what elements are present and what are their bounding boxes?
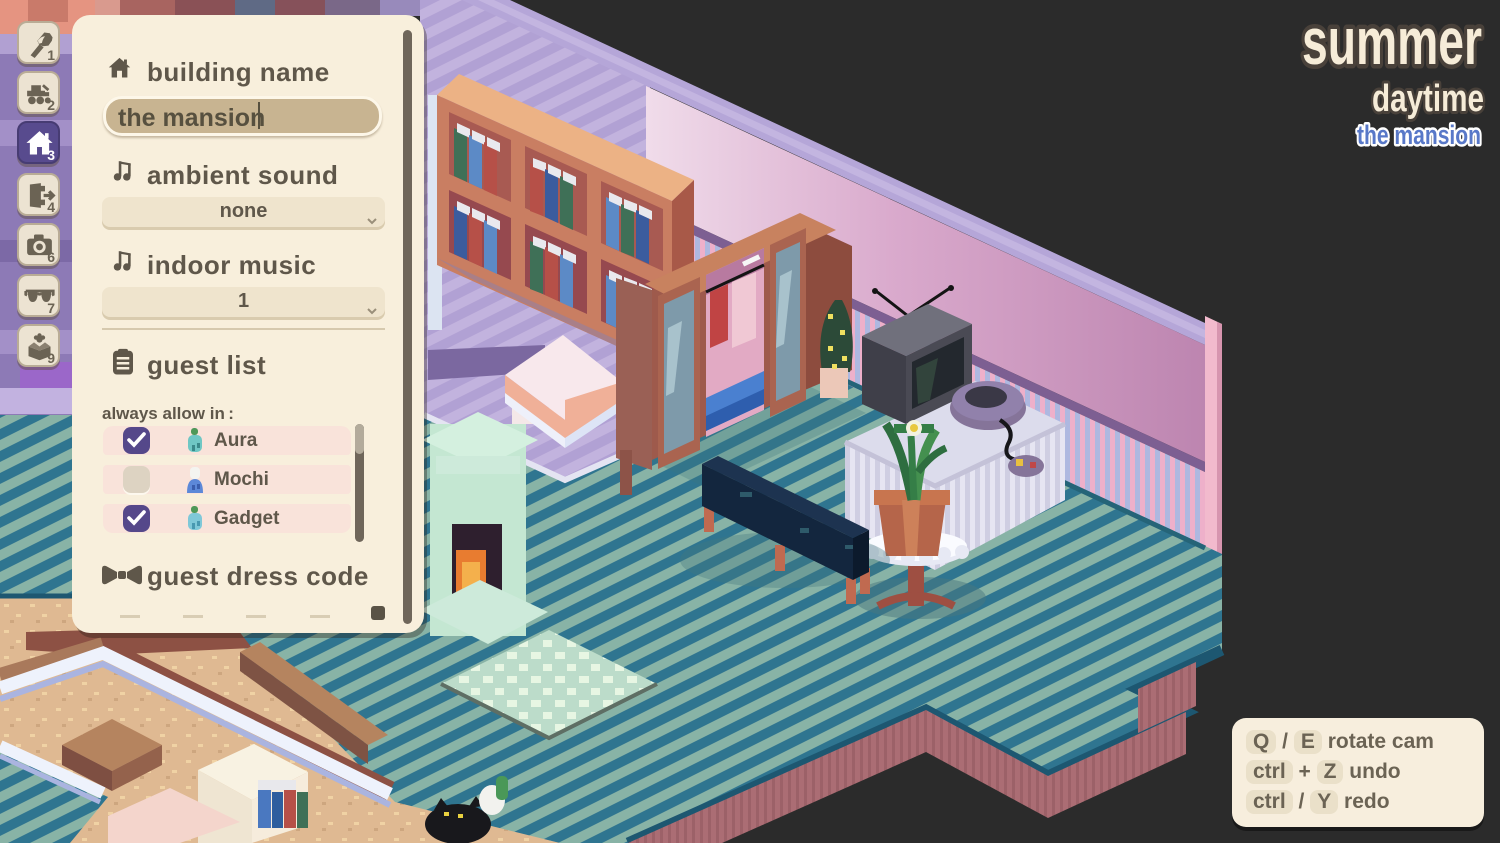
svg-text:summer: summer (1302, 4, 1482, 78)
svg-text:the mansion: the mansion (1357, 120, 1481, 150)
svg-text:daytime: daytime (1372, 78, 1484, 120)
